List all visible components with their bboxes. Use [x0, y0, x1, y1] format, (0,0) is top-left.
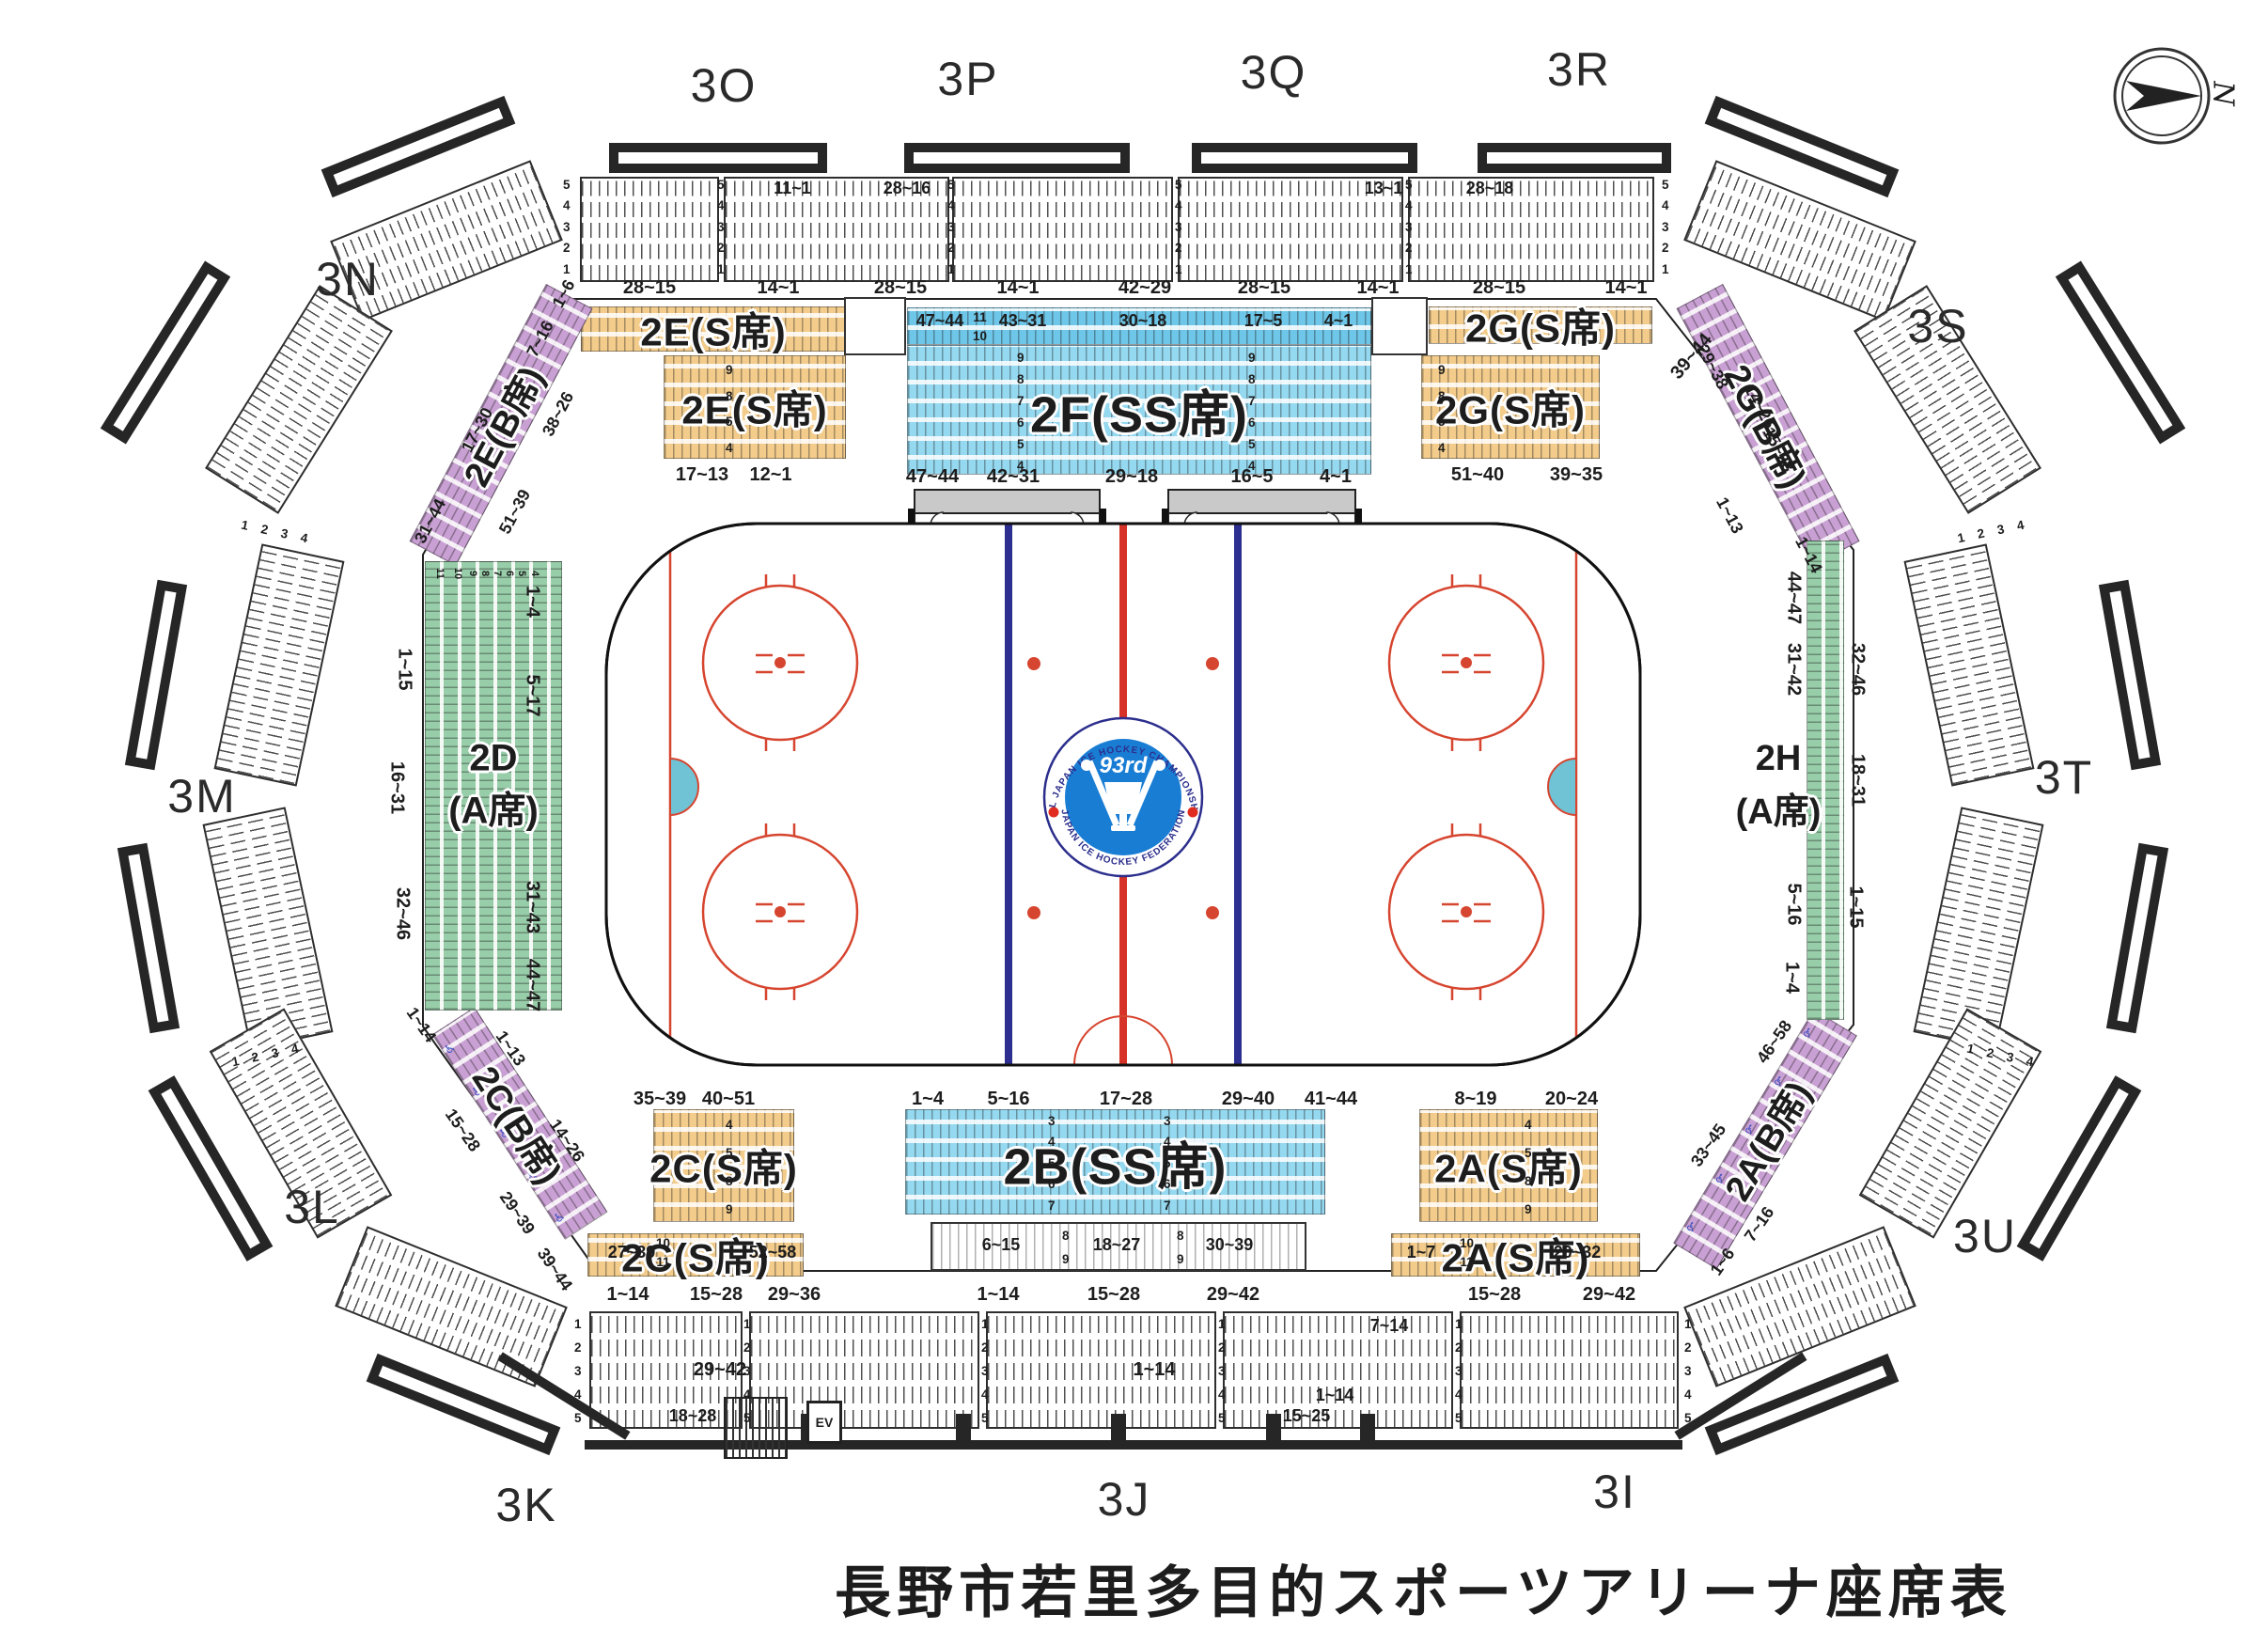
row-numbers: 12345 [1455, 1312, 1462, 1430]
row-number: 11 [973, 308, 986, 327]
row-number: 5 [563, 175, 571, 196]
row-number: 1 [1218, 1312, 1226, 1336]
row-number: 10 [1460, 1234, 1474, 1253]
section-label-2F: 2F(SS席) [1030, 373, 1248, 447]
seat-range-label: 1~4 [522, 586, 543, 618]
row-number: 3 [717, 217, 725, 238]
seat-range-label: 32~46 [392, 887, 414, 940]
row-number: 8 [1017, 368, 1025, 390]
row-number: 2 [1684, 1336, 1692, 1359]
entrance-gate [904, 143, 1130, 173]
row-number: 9 [726, 357, 733, 384]
row-number: 6 [1017, 412, 1025, 433]
ring-seat-band [1460, 1311, 1679, 1429]
row-numbers: 54321 [1175, 175, 1182, 280]
row-number: 9 [1525, 1196, 1532, 1224]
row-number: 2 [1218, 1336, 1226, 1359]
ring-seat-band [952, 177, 1173, 282]
section-2D: 2D (A席) [425, 561, 562, 1011]
row-numbers: 987654 [1248, 347, 1256, 477]
column-number: 9 [467, 571, 478, 576]
seat-range-label: 17~13 [676, 464, 728, 486]
column-number: 5 [516, 571, 527, 576]
row-numbers: 12345 [1218, 1312, 1226, 1430]
seat-range-label: 29~40 [1222, 1089, 1275, 1110]
row-number: 3 [1684, 1359, 1692, 1383]
team-bench [1162, 490, 1362, 527]
wall-post [1266, 1414, 1281, 1442]
seat-range-label: 41~44 [1305, 1089, 1357, 1110]
row-number: 1 [1662, 259, 1669, 280]
seat-range-label: 47~44 [906, 466, 959, 488]
column-number: 6 [504, 571, 515, 576]
ring-section-3I: 3I [1593, 1465, 1636, 1519]
row-number: 1 [240, 518, 249, 533]
row-number: 5 [1438, 409, 1446, 435]
row-number: 11 [1460, 1253, 1473, 1272]
row-numbers: 34567 [1048, 1111, 1056, 1216]
row-number: 5 [1525, 1139, 1532, 1168]
column-number: 11 [434, 568, 446, 579]
row-number: 8 [726, 1168, 733, 1196]
row-numbers: 54321 [1662, 175, 1669, 280]
section-label-2G-strip: 2G(S席) [1465, 297, 1616, 354]
seat-range-label: 42~31 [987, 466, 1040, 488]
seat-range-label: 30~39 [1206, 1235, 1254, 1255]
section-label-2E: 2E(S席) [681, 379, 827, 436]
row-number: 3 [1218, 1359, 1226, 1383]
row-numbers: 9854 [726, 357, 733, 461]
seat-range-label: 29~18 [1105, 466, 1158, 488]
seat-range-label: 29~42 [694, 1359, 746, 1381]
seat-range-label: 1~4 [1781, 962, 1803, 994]
seat-range-label: 1~4 [912, 1089, 944, 1110]
seat-range-label: 5~16 [987, 1089, 1029, 1110]
row-number: 2 [1976, 526, 1985, 541]
seat-range-label: 1~15 [394, 648, 415, 690]
row-number: 5 [1455, 1406, 1462, 1430]
row-number: 5 [743, 1406, 751, 1430]
seat-range-label: 29~42 [1583, 1284, 1635, 1306]
seat-range-label: 42~29 [1118, 277, 1171, 299]
row-number: 1 [1405, 259, 1413, 280]
row-number: 5 [1048, 1153, 1056, 1174]
ring-section-3U: 3U [1953, 1209, 2017, 1263]
seat-range-label: 35~39 [633, 1089, 686, 1110]
row-number: 7 [1248, 390, 1256, 412]
row-number: 5 [1164, 1153, 1171, 1174]
row-number: 4 [1684, 1383, 1692, 1406]
seat-range-label: 31~42 [1783, 643, 1805, 696]
seat-range-label: 16~5 [1230, 466, 1273, 488]
row-number: 1 [981, 1312, 989, 1336]
seat-range-label: 40~51 [702, 1089, 755, 1110]
row-number: 4 [1662, 196, 1669, 216]
section-2E: 2E(S席) [664, 355, 846, 459]
row-number: 2 [563, 238, 571, 259]
row-number: 3 [1995, 522, 2005, 537]
row-number: 8 [1177, 1224, 1184, 1247]
row-number: 4 [726, 1111, 733, 1139]
blue-line [1005, 524, 1012, 1065]
seat-range-label: 44~47 [1783, 572, 1805, 624]
column-number: 7 [492, 571, 503, 576]
seat-range-label: 43~31 [999, 311, 1047, 331]
stairs [724, 1397, 788, 1459]
elevator: EV [806, 1401, 842, 1444]
ring-seat-band [580, 177, 719, 282]
seat-range-label: 1~14 [1316, 1386, 1354, 1405]
seat-range-label: 28~15 [874, 277, 927, 299]
section-label-2D-line1: 2D [448, 738, 539, 780]
row-numbers: 54321 [1405, 175, 1413, 280]
row-number: 7 [1017, 390, 1025, 412]
column-numbers: 1110987654 [434, 568, 538, 579]
row-numbers: 12345 [981, 1312, 989, 1430]
row-number: 7 [1048, 1196, 1056, 1216]
seat-range-label: 15~28 [690, 1284, 743, 1306]
ice-rink: ALL JAPAN ICE HOCKEY CHAMPIONSHIP JAPAN … [583, 465, 1711, 1123]
seat-range-label: 18~31 [1847, 754, 1869, 807]
row-number: 4 [1175, 196, 1182, 216]
seat-range-label: 11~1 [774, 179, 811, 198]
section-2A: 2A(S席) [1419, 1109, 1598, 1222]
row-number: 5 [1248, 433, 1256, 455]
seat-range-label: 1~14 [977, 1284, 1019, 1306]
wheelchair-icon: ♿ [552, 1210, 568, 1226]
section-label-2E-strip: 2E(S席) [640, 301, 786, 358]
row-number: 5 [1017, 433, 1025, 455]
ring-section-3Q: 3Q [1241, 45, 1307, 100]
section-2B: 2B(SS席) [905, 1109, 1325, 1215]
compass-north-label: N [2207, 81, 2240, 105]
section-label-2B: 2B(SS席) [1003, 1125, 1227, 1199]
row-number: 7 [1164, 1196, 1171, 1216]
row-number: 1 [743, 1312, 751, 1336]
seat-range-label: 28~16 [884, 179, 931, 198]
seat-range-label: 1~14 [1133, 1359, 1175, 1381]
row-number: 6 [1164, 1174, 1171, 1195]
vomitory [1371, 297, 1428, 355]
row-number: 4 [1455, 1383, 1462, 1406]
ring-section-3T: 3T [2035, 750, 2093, 805]
row-number: 5 [726, 1139, 733, 1168]
row-number: 1 [574, 1312, 582, 1336]
entrance-gate [1192, 143, 1417, 173]
row-number: 2 [1455, 1336, 1462, 1359]
seat-range-label: 16~31 [386, 761, 408, 814]
ring-section-3K: 3K [495, 1478, 556, 1532]
seat-range-label: 17~5 [1244, 311, 1283, 331]
seat-range-label: 1~15 [1845, 886, 1867, 928]
seat-range-label: 17~28 [1100, 1089, 1152, 1110]
row-number: 10 [973, 327, 987, 346]
row-number: 6 [1248, 412, 1256, 433]
seat-range-label: 29~42 [1207, 1284, 1259, 1306]
row-numbers: 89 [1177, 1224, 1184, 1271]
page-title: 長野市若里多目的スポーツアリーナ座席表 [835, 1547, 2012, 1629]
row-number: 4 [1438, 435, 1446, 462]
row-number: 8 [1525, 1168, 1532, 1196]
row-number: 2 [574, 1336, 582, 1359]
row-number: 5 [1684, 1406, 1692, 1430]
row-number: 9 [1017, 347, 1025, 368]
row-number: 3 [981, 1359, 989, 1383]
seat-range-label: 1~14 [606, 1284, 649, 1306]
seat-range-label: 31~43 [522, 881, 543, 933]
row-numbers: 89 [1062, 1224, 1070, 1271]
row-number: 4 [1048, 1132, 1056, 1152]
seat-range-label: 4~1 [1320, 466, 1352, 488]
wheelchair-icon: ♿ [1800, 1025, 1816, 1041]
seat-range-label: 15~25 [1283, 1406, 1331, 1426]
seat-range-label: 18~28 [669, 1406, 717, 1426]
seat-range-label: 47~44 [916, 311, 964, 331]
wheelchair-icon: ♿ [442, 1041, 458, 1057]
seat-range-label: 5~17 [522, 674, 543, 716]
row-number: 5 [947, 175, 955, 196]
row-numbers: 12345 [1684, 1312, 1692, 1430]
row-number: 1 [1965, 1042, 1975, 1057]
compass-icon [2110, 42, 2218, 150]
seat-range-label: 14~1 [1604, 277, 1647, 299]
row-number: 2 [743, 1336, 751, 1359]
ring-section-3R: 3R [1547, 42, 1611, 97]
ring-seat-band [1408, 177, 1654, 282]
row-number: 5 [1175, 175, 1182, 196]
row-numbers: 12345 [574, 1312, 582, 1430]
row-number: 5 [726, 409, 733, 435]
section-2G: 2G(S席) [1421, 355, 1600, 459]
row-number: 8 [1438, 384, 1446, 410]
seat-range-label: 15~28 [1087, 1284, 1140, 1306]
row-number: 1 [1455, 1312, 1462, 1336]
row-number: 1 [1175, 259, 1182, 280]
row-number: 1 [947, 259, 955, 280]
seat-range-label: 15~28 [1468, 1284, 1521, 1306]
row-number: 3 [279, 526, 289, 541]
championship-logo: ALL JAPAN ICE HOCKEY CHAMPIONSHIP JAPAN … [1044, 718, 1202, 876]
column-number: 8 [479, 571, 491, 576]
row-number: 4 [1218, 1383, 1226, 1406]
row-number: 4 [574, 1383, 582, 1406]
seat-range-label: 44~47 [522, 959, 543, 1011]
row-number: 9 [1248, 347, 1256, 368]
ring-section-3J: 3J [1098, 1472, 1151, 1527]
section-label-2D-line2: (A席) [448, 780, 539, 835]
ring-seat-band [986, 1311, 1216, 1429]
vomitory [844, 297, 906, 355]
wall-post [1360, 1414, 1375, 1442]
seat-range-label: 20~24 [1545, 1089, 1598, 1110]
entrance-gate [1478, 143, 1671, 173]
row-number: 2 [717, 238, 725, 259]
seat-range-label: 6~15 [982, 1235, 1021, 1255]
seat-range-label: 28~15 [1473, 277, 1525, 299]
seat-range-label: 7~14 [1370, 1316, 1409, 1336]
row-numbers: 1110 [973, 308, 987, 346]
row-number: 1 [717, 259, 725, 280]
arena-seating-chart: 54321 54321 54321 54321 54321 54321 11~1… [0, 0, 2268, 1630]
logo-ordinal: 93rd [1100, 753, 1149, 778]
row-numbers: 4589 [726, 1111, 733, 1224]
seat-range-label: 30~18 [1119, 311, 1167, 331]
row-number: 5 [1662, 175, 1669, 196]
row-number: 6 [1048, 1174, 1056, 1195]
row-number: 4 [947, 196, 955, 216]
section-2H [1807, 541, 1844, 1020]
row-numbers: 54321 [947, 175, 955, 280]
seat-range-label: 52~58 [749, 1243, 797, 1262]
section-2F: 2F(SS席) [907, 345, 1371, 475]
column-number: 10 [452, 568, 463, 579]
seat-range-label: 13~1 [1365, 179, 1403, 198]
row-number: 4 [717, 196, 725, 216]
row-number: 3 [1164, 1111, 1171, 1132]
row-number: 5 [981, 1406, 989, 1430]
seat-range-label: 14~1 [996, 277, 1039, 299]
section-label-2D: 2D (A席) [448, 738, 539, 835]
row-number: 1 [1684, 1312, 1692, 1336]
row-number: 5 [1405, 175, 1413, 196]
seat-range-label: 39~35 [1550, 464, 1603, 486]
entrance-gate [609, 143, 827, 173]
row-number: 10 [656, 1234, 670, 1253]
row-numbers: 1011 [1460, 1234, 1474, 1272]
seat-range-label: 32~46 [1847, 643, 1869, 696]
seat-range-label: 20~32 [1554, 1243, 1602, 1262]
row-numbers: 34567 [1164, 1111, 1171, 1216]
ring-section-3P: 3P [937, 52, 998, 106]
ring-section-3S: 3S [1907, 299, 1968, 353]
seat-range-label: 29~36 [768, 1284, 821, 1306]
section-label-2G: 2G(S席) [1435, 379, 1586, 436]
seat-range-label: 28~15 [1238, 277, 1290, 299]
row-numbers: 54321 [717, 175, 725, 280]
ring-section-3N: 3N [316, 252, 380, 306]
row-number: 4 [726, 435, 733, 462]
row-number: 3 [1662, 217, 1669, 238]
row-number: 2 [1175, 238, 1182, 259]
ring-section-3M: 3M [167, 769, 236, 823]
row-number: 3 [1175, 217, 1182, 238]
section-2G-strip: 2G(S席) [1429, 306, 1652, 344]
seat-range-label: 28~18 [1466, 179, 1514, 198]
row-number: 3 [563, 217, 571, 238]
blue-line [1234, 524, 1242, 1065]
wheelchair-icon: ♿ [1683, 1219, 1699, 1235]
row-number: 4 [743, 1383, 751, 1406]
row-number: 4 [563, 196, 571, 216]
section-label-2H-line1: 2H [1756, 739, 1802, 779]
row-number: 5 [717, 175, 725, 196]
row-number: 3 [1405, 217, 1413, 238]
seat-range-label: 51~40 [1451, 464, 1504, 486]
section-2E-strip: 2E(S席) [581, 306, 846, 352]
seat-range-label: 14~1 [757, 277, 799, 299]
row-numbers: 4589 [1525, 1111, 1532, 1224]
team-bench [908, 490, 1106, 527]
ring-section-3L: 3L [284, 1180, 340, 1234]
ring-seat-band [1223, 1311, 1453, 1429]
row-number: 3 [270, 1045, 279, 1060]
row-number: 9 [726, 1196, 733, 1224]
seat-range-label: 27~39 [608, 1243, 656, 1262]
row-number: 4 [981, 1383, 989, 1406]
section-label-2C: 2C(S席) [649, 1137, 798, 1195]
row-number: 9 [1438, 357, 1446, 384]
section-2C: 2C(S席) [653, 1109, 794, 1222]
row-number: 5 [574, 1406, 582, 1430]
seat-range-label: 1~7 [1407, 1243, 1436, 1262]
seat-range-label: 8~19 [1454, 1089, 1496, 1110]
seat-range-label: 28~15 [623, 277, 676, 299]
row-number: 3 [1048, 1111, 1056, 1132]
seat-range-label: 12~1 [749, 464, 791, 486]
row-numbers: 987654 [1017, 347, 1025, 477]
row-number: 3 [574, 1359, 582, 1383]
row-number: 8 [726, 384, 733, 410]
row-number: 2 [1405, 238, 1413, 259]
row-number: 4 [1525, 1111, 1532, 1139]
row-number: 8 [1248, 368, 1256, 390]
section-label-2A: 2A(S席) [1434, 1137, 1583, 1195]
row-number: 9 [1177, 1247, 1184, 1271]
seat-range-label: 18~27 [1093, 1235, 1141, 1255]
row-number: 5 [1218, 1406, 1226, 1430]
row-number: 4 [1164, 1132, 1171, 1152]
row-number: 2 [1985, 1045, 1994, 1060]
row-number: 3 [947, 217, 955, 238]
row-number: 8 [1062, 1224, 1070, 1247]
elevator-label: EV [816, 1415, 834, 1430]
row-number: 3 [2005, 1050, 2014, 1065]
wall-post [956, 1414, 971, 1442]
row-number: 4 [1405, 196, 1413, 216]
row-number: 2 [947, 238, 955, 259]
wall-post [1111, 1414, 1126, 1442]
ring-section-3O: 3O [691, 58, 758, 113]
row-number: 2 [250, 1050, 259, 1065]
section-label-2H-line2: (A席) [1736, 782, 1822, 834]
row-number: 2 [1662, 238, 1669, 259]
row-numbers: 54321 [563, 175, 571, 280]
row-number: 2 [981, 1336, 989, 1359]
row-number: 3 [1455, 1359, 1462, 1383]
seat-range-label: 4~1 [1324, 311, 1353, 331]
row-number: 2 [259, 522, 269, 537]
row-number: 11 [656, 1253, 669, 1272]
row-numbers: 1011 [656, 1234, 670, 1272]
seat-range-label: 5~16 [1783, 883, 1805, 925]
row-number: 9 [1062, 1247, 1070, 1271]
row-numbers: 9854 [1438, 357, 1446, 461]
column-number: 4 [529, 571, 540, 576]
seat-range-label: 14~1 [1356, 277, 1399, 299]
